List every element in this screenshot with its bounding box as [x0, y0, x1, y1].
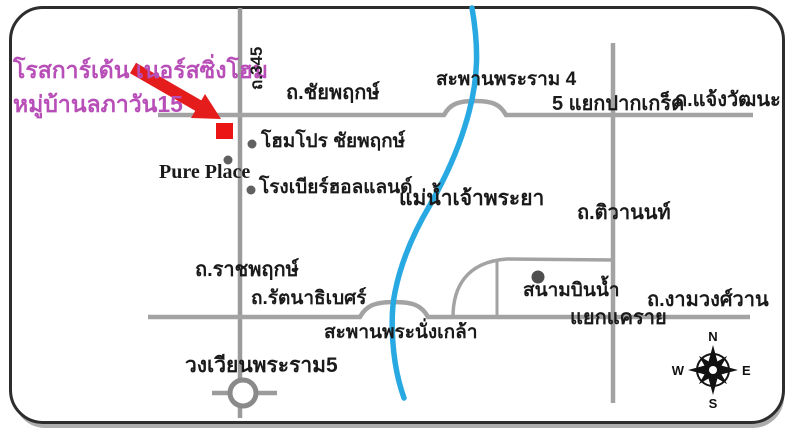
bridge-rama4-label: สะพานพระราม 4 — [436, 69, 576, 91]
road-345-label: ถ.345 — [247, 47, 267, 90]
place-homepro-label: โฮมโปร ชัยพฤกษ์ — [261, 131, 405, 153]
compass-center — [709, 366, 717, 374]
compass-rose: N S E W — [672, 329, 751, 411]
road-ratchaphruek-label: ถ.ราชพฤกษ์ — [195, 259, 299, 282]
roundabout-circle — [230, 380, 256, 406]
destination-title: โรสการ์เด้น เนอร์สซิ่งโฮม หมู่บ้านลภาวัน… — [13, 53, 268, 121]
road-chaengwattana-label: ถ.แจ้งวัฒนะ — [675, 89, 781, 112]
junction-rama5-roundabout-label: วงเวียนพระราม5 — [185, 354, 338, 378]
homepro-dot — [248, 140, 257, 149]
bridge-phra-nangklao-label: สะพานพระนั่งเกล้า — [324, 322, 478, 344]
place-pure-place-label: Pure Place — [159, 161, 250, 184]
road-tiwanon-label: ถ.ติวานนท์ — [577, 202, 671, 225]
destination-square-marker — [216, 123, 233, 139]
compass-east-label: E — [742, 363, 751, 378]
place-sanambinnam-label: สนามบินน้ำ — [523, 280, 619, 302]
destination-title-line2: หมู่บ้านลภาวัน15 — [13, 87, 268, 121]
road-chaiyaphruek-label: ถ.ชัยพฤกษ์ — [286, 82, 380, 105]
junction-pakkret-label: 5 แยกปากเกร็ด — [552, 93, 684, 116]
compass-north-label: N — [708, 329, 717, 344]
map-canvas: N S E W โรสการ์เด้น เนอร์สซิ่งโฮม หมู่บ้… — [0, 0, 800, 442]
compass-west-label: W — [672, 363, 685, 378]
compass-south-label: S — [709, 396, 718, 411]
holland-brewery-dot — [247, 186, 256, 195]
destination-title-line1: โรสการ์เด้น เนอร์สซิ่งโฮม — [13, 53, 268, 87]
road-rattanathibet-label: ถ.รัตนาธิเบศร์ — [251, 288, 366, 310]
river-name-label: แม่น้ำเจ้าพระยา — [399, 187, 544, 211]
place-holland-brewery-label: โรงเบียร์ฮอลแลนด์ — [259, 177, 412, 199]
junction-khae-rai-label: แยกแคราย — [570, 307, 667, 330]
